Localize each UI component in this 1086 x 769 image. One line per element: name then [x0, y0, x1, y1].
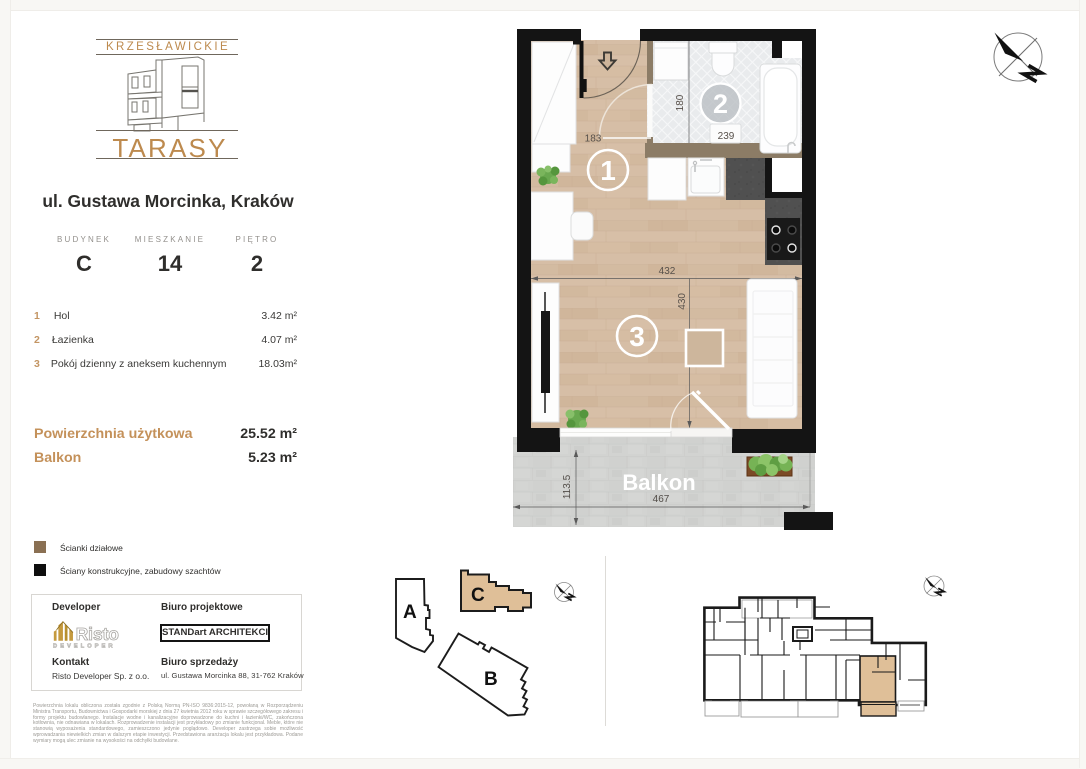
svg-text:1: 1: [600, 155, 616, 186]
svg-text:B: B: [484, 669, 498, 690]
svg-text:113.5: 113.5: [562, 474, 573, 499]
svg-text:3: 3: [629, 321, 645, 352]
svg-text:430: 430: [677, 293, 688, 310]
svg-text:183: 183: [585, 134, 602, 145]
svg-text:2: 2: [713, 89, 728, 119]
svg-text:467: 467: [653, 494, 670, 505]
svg-text:239: 239: [718, 131, 735, 142]
svg-text:180: 180: [675, 94, 686, 111]
svg-text:A: A: [403, 602, 417, 623]
svg-text:432: 432: [659, 266, 676, 277]
svg-text:C: C: [471, 585, 485, 606]
svg-text:Balkon: Balkon: [622, 470, 695, 495]
